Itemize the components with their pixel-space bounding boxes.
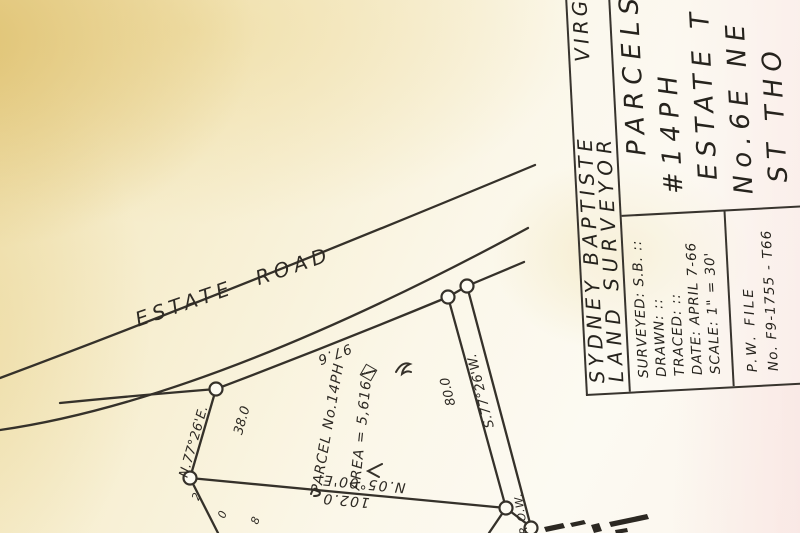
- survey-details-cell: SURVEYED: S.B. :: DRAWN: :: TRACED: :: D…: [622, 211, 735, 391]
- text-fragment: [615, 528, 628, 533]
- text-fragment: [591, 523, 602, 533]
- leaf-pen-mark: [396, 363, 411, 374]
- scanned-survey-plat: ESTATE ROAD 97.6 PARCEL No.14PH AREA = 5…: [0, 0, 800, 533]
- boundary-continuation-line: [190, 478, 218, 533]
- cut-strip-fragment: VIRG: [567, 0, 594, 62]
- text-fragment: [570, 520, 586, 527]
- text-fragment: [609, 514, 649, 527]
- pin-marker: [461, 280, 474, 293]
- frontage-continuation-line: [467, 262, 524, 286]
- pin-marker: [500, 502, 513, 515]
- plat-description-cell: PARCELS #14PH ESTATE T No.6E NE ST THO: [610, 0, 800, 215]
- parcel-boundaries: [60, 262, 531, 533]
- cut-off-text-fragments: [544, 514, 649, 533]
- pin-marker: [442, 291, 455, 304]
- pin-marker: [210, 383, 223, 396]
- title-block: SYDNEY BAPTISTE LAND SURVEYOR VIRG SURVE…: [565, 0, 800, 396]
- adjacent-frontage-line: [60, 389, 216, 403]
- text-fragment: [544, 523, 565, 532]
- title-block-left-column: SURVEYED: S.B. :: DRAWN: :: TRACED: :: D…: [622, 204, 800, 392]
- title-block-body: SURVEYED: S.B. :: DRAWN: :: TRACED: :: D…: [610, 0, 800, 392]
- file-number-cell: P.W. FILE No. F9-1755 - T66: [726, 206, 800, 386]
